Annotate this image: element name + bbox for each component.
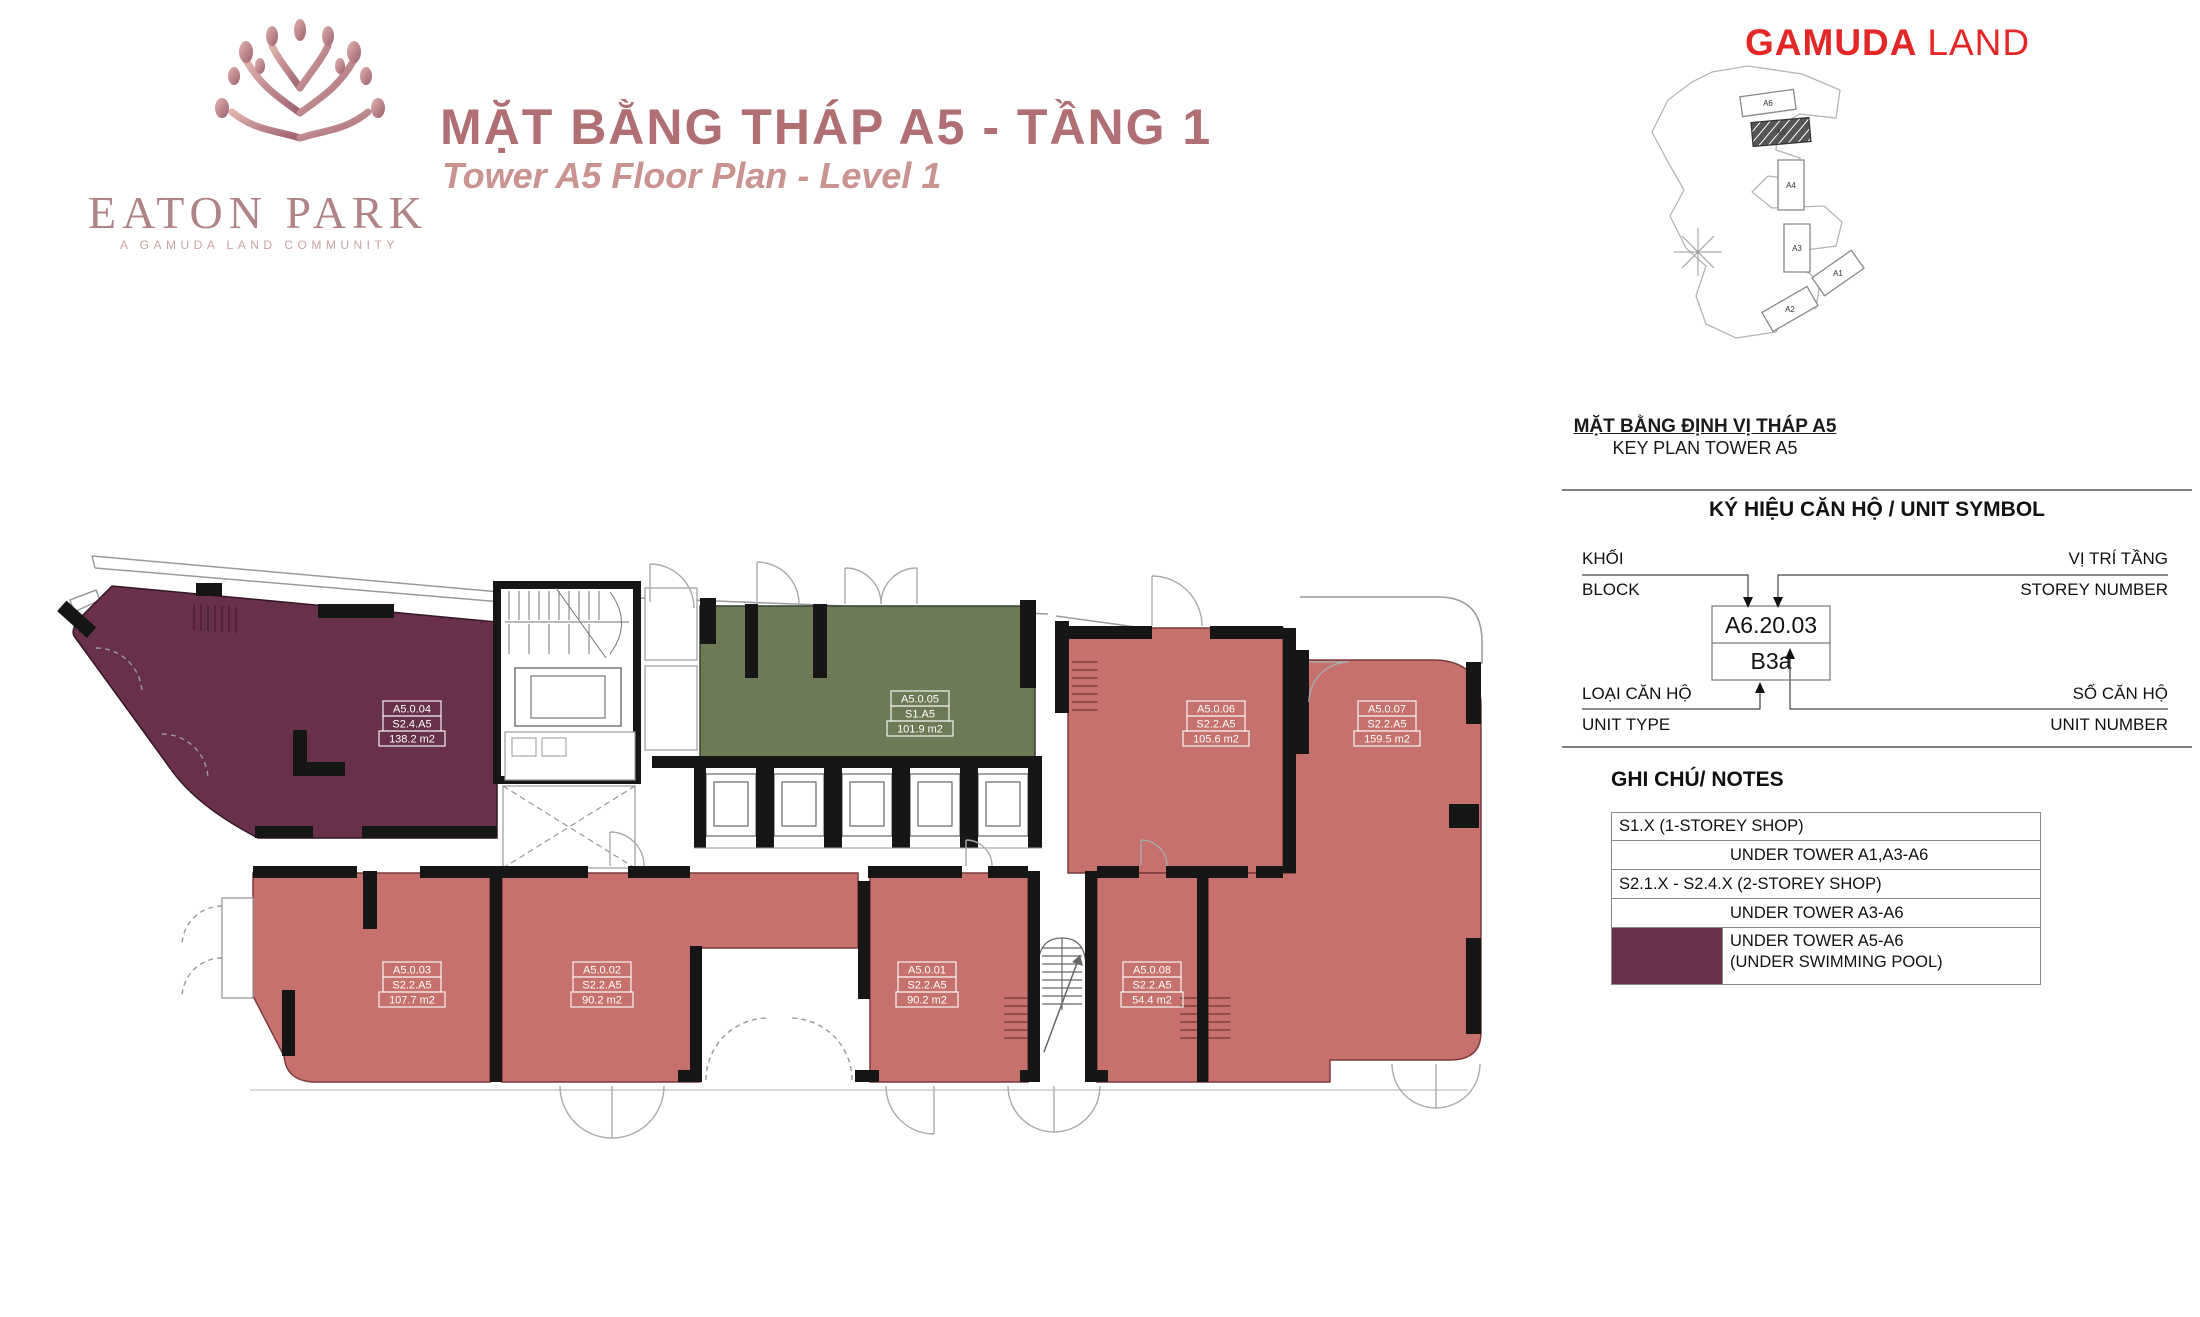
compass-icon xyxy=(1674,228,1722,276)
unit-a5004 xyxy=(73,586,497,838)
keyplan-label-a5: A5 xyxy=(1776,128,1786,137)
keyplan-label-a3: A3 xyxy=(1792,244,1802,253)
svg-text:138.2 m2: 138.2 m2 xyxy=(389,734,435,746)
keyplan-label-a1: A1 xyxy=(1833,269,1843,278)
keyplan-label-a2: A2 xyxy=(1785,305,1795,314)
svg-text:S2.2.A5: S2.2.A5 xyxy=(1196,719,1235,731)
elevator-bank xyxy=(652,756,1042,848)
svg-text:A5.0.06: A5.0.06 xyxy=(1197,704,1235,716)
arrow-up-icon xyxy=(1755,682,1765,693)
svg-text:A5.0.04: A5.0.04 xyxy=(393,704,431,716)
unit-symbol-diagram xyxy=(1582,575,2168,709)
svg-text:107.7 m2: 107.7 m2 xyxy=(389,995,435,1007)
svg-text:A5.0.08: A5.0.08 xyxy=(1133,965,1171,977)
svg-text:A5.0.07: A5.0.07 xyxy=(1368,704,1406,716)
unit-a5006 xyxy=(1068,628,1283,873)
floor-plan-drawing: A6 A5 A4 A3 A1 A2 xyxy=(0,0,2200,1317)
svg-text:159.5 m2: 159.5 m2 xyxy=(1364,734,1410,746)
unit-a5002 xyxy=(502,873,858,1082)
svg-text:S2.2.A5: S2.2.A5 xyxy=(392,980,431,992)
svg-text:S2.2.A5: S2.2.A5 xyxy=(1367,719,1406,731)
lobby-stair xyxy=(1038,938,1086,1052)
svg-text:101.9 m2: 101.9 m2 xyxy=(897,724,943,736)
svg-text:90.2 m2: 90.2 m2 xyxy=(582,995,622,1007)
svg-text:90.2 m2: 90.2 m2 xyxy=(907,995,947,1007)
svg-text:A5.0.03: A5.0.03 xyxy=(393,965,431,977)
svg-text:105.6 m2: 105.6 m2 xyxy=(1193,734,1239,746)
stair-core xyxy=(497,585,637,780)
arrow-up-icon xyxy=(1785,648,1795,659)
svg-text:A5.0.02: A5.0.02 xyxy=(583,965,621,977)
svg-text:S2.4.A5: S2.4.A5 xyxy=(392,719,431,731)
key-plan-map: A6 A5 A4 A3 A1 A2 xyxy=(1652,66,1864,338)
side-entry-bay xyxy=(222,898,253,998)
keyplan-label-a4: A4 xyxy=(1786,181,1796,190)
svg-text:A5.0.01: A5.0.01 xyxy=(908,965,946,977)
svg-text:S1.A5: S1.A5 xyxy=(905,709,935,721)
svg-text:54.4 m2: 54.4 m2 xyxy=(1132,995,1172,1007)
page: EATON PARK A GAMUDA LAND COMMUNITY MẶT B… xyxy=(0,0,2200,1317)
keyplan-label-a6: A6 xyxy=(1763,99,1773,108)
svg-text:S2.2.A5: S2.2.A5 xyxy=(1132,980,1171,992)
svg-text:S2.2.A5: S2.2.A5 xyxy=(582,980,621,992)
svg-text:S2.2.A5: S2.2.A5 xyxy=(907,980,946,992)
svg-text:A5.0.05: A5.0.05 xyxy=(901,694,939,706)
